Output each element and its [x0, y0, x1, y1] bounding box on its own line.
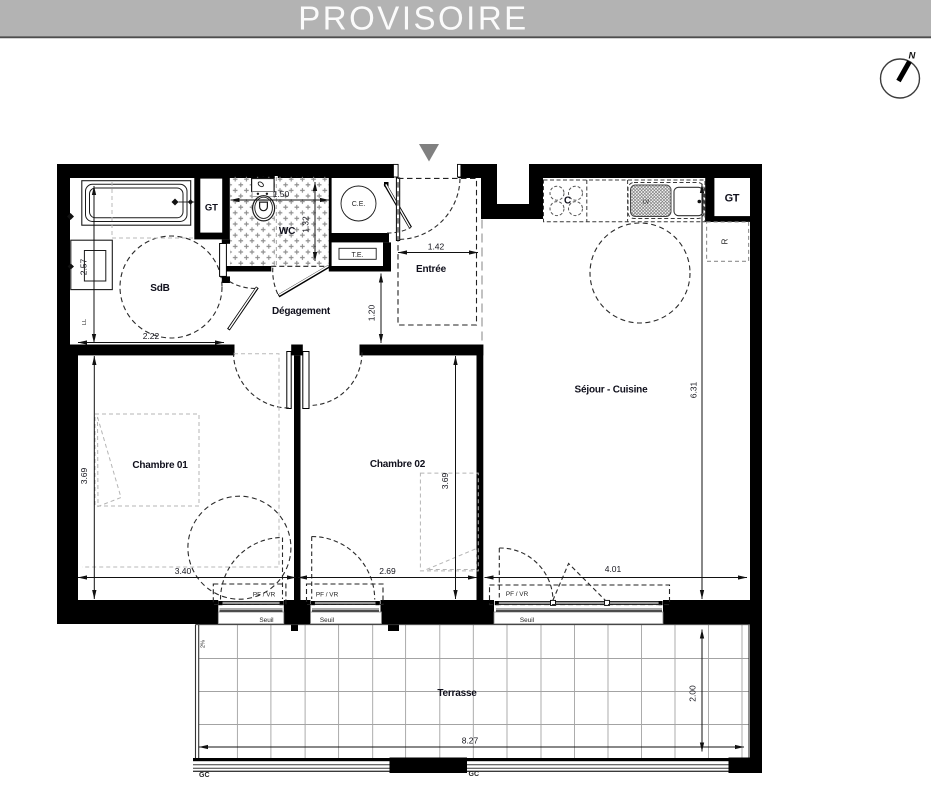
svg-text:T.E.: T.E. — [351, 252, 363, 259]
svg-text:3.69: 3.69 — [79, 467, 89, 484]
svg-text:LV: LV — [643, 200, 650, 206]
svg-text:2.69: 2.69 — [379, 566, 396, 576]
svg-text:2.00: 2.00 — [688, 685, 698, 702]
svg-text:GT: GT — [725, 193, 740, 205]
svg-text:C.E.: C.E. — [352, 201, 366, 208]
svg-text:Chambre 01: Chambre 01 — [132, 460, 188, 471]
svg-text:Entrée: Entrée — [416, 264, 447, 275]
svg-text:PF / VR: PF / VR — [316, 592, 339, 599]
svg-text:1.20: 1.20 — [367, 304, 377, 321]
svg-text:Terrasse: Terrasse — [437, 688, 477, 699]
svg-text:GC: GC — [469, 771, 480, 778]
svg-text:Chambre 02: Chambre 02 — [370, 459, 426, 470]
svg-text:Dégagement: Dégagement — [272, 306, 331, 317]
svg-text:2%: 2% — [201, 640, 207, 648]
svg-text:4.01: 4.01 — [605, 564, 622, 574]
svg-text:GC: GC — [199, 772, 210, 779]
svg-text:PROVISOIRE: PROVISOIRE — [298, 0, 528, 37]
svg-text:1.50: 1.50 — [273, 189, 290, 199]
svg-text:C: C — [564, 196, 571, 207]
svg-text:3.40: 3.40 — [175, 566, 192, 576]
svg-text:1.32: 1.32 — [301, 216, 311, 233]
svg-text:SdB: SdB — [150, 283, 169, 294]
svg-text:Seuil: Seuil — [520, 617, 534, 624]
svg-text:WC: WC — [279, 226, 295, 237]
svg-text:Séjour - Cuisine: Séjour - Cuisine — [575, 385, 649, 396]
svg-text:3.69: 3.69 — [440, 472, 450, 489]
svg-text:2.22: 2.22 — [143, 331, 160, 341]
svg-text:R: R — [721, 238, 730, 244]
svg-text:1.42: 1.42 — [428, 242, 445, 252]
svg-text:LL: LL — [82, 319, 88, 325]
svg-text:PF / VR: PF / VR — [253, 592, 276, 599]
svg-text:Seuil: Seuil — [320, 617, 334, 624]
svg-text:Seuil: Seuil — [259, 617, 273, 624]
svg-text:8.27: 8.27 — [462, 736, 479, 746]
svg-text:2.57: 2.57 — [79, 258, 89, 275]
svg-text:6.31: 6.31 — [689, 381, 699, 398]
svg-text:PF / VR: PF / VR — [506, 591, 529, 598]
svg-text:GT: GT — [205, 203, 218, 214]
svg-text:N: N — [909, 51, 917, 62]
